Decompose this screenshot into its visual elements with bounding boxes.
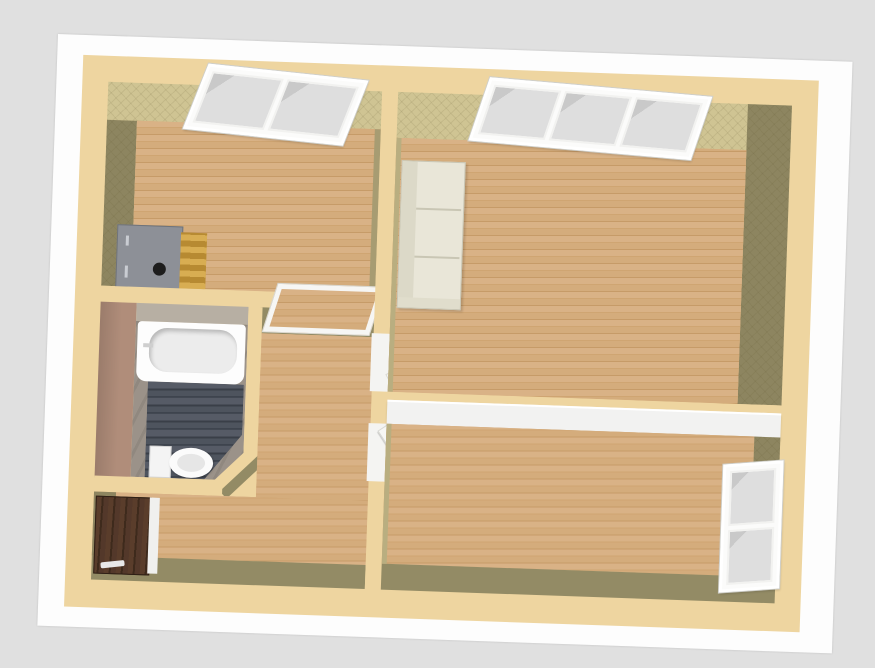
window-pane <box>726 527 774 585</box>
ground-plane[interactable] <box>37 34 852 653</box>
stove-side-panel <box>179 232 207 289</box>
window-pane <box>478 85 562 140</box>
sofa[interactable] <box>397 160 466 310</box>
sofa-back <box>398 161 418 307</box>
stove[interactable] <box>115 224 183 290</box>
bathroom-west-wall-face <box>95 302 137 479</box>
bathtub[interactable] <box>136 321 246 385</box>
sofa-cushion-seam <box>416 208 461 212</box>
sofa-cushion-seam <box>414 256 459 260</box>
building-walls <box>64 55 819 632</box>
toilet-seat <box>177 453 206 472</box>
window-pane <box>549 91 633 146</box>
window-pane <box>267 79 358 138</box>
stove-detail <box>126 235 129 245</box>
stove-detail <box>125 265 128 277</box>
bathtub-basin <box>148 327 237 374</box>
passthrough-window[interactable] <box>263 284 384 335</box>
sofa-armrest <box>398 297 460 309</box>
entry-door[interactable] <box>93 496 152 576</box>
bathtub-faucet-icon <box>143 343 153 347</box>
bottomright-room-floor <box>382 424 755 577</box>
stove-knob-icon <box>153 262 166 275</box>
viewport-3d[interactable] <box>0 0 875 668</box>
window-pane <box>728 468 776 526</box>
entry-door-handle-icon <box>100 560 124 568</box>
hall-floor-north <box>256 333 374 507</box>
window-pane <box>619 97 703 152</box>
window-bottomright-east[interactable] <box>719 460 784 592</box>
